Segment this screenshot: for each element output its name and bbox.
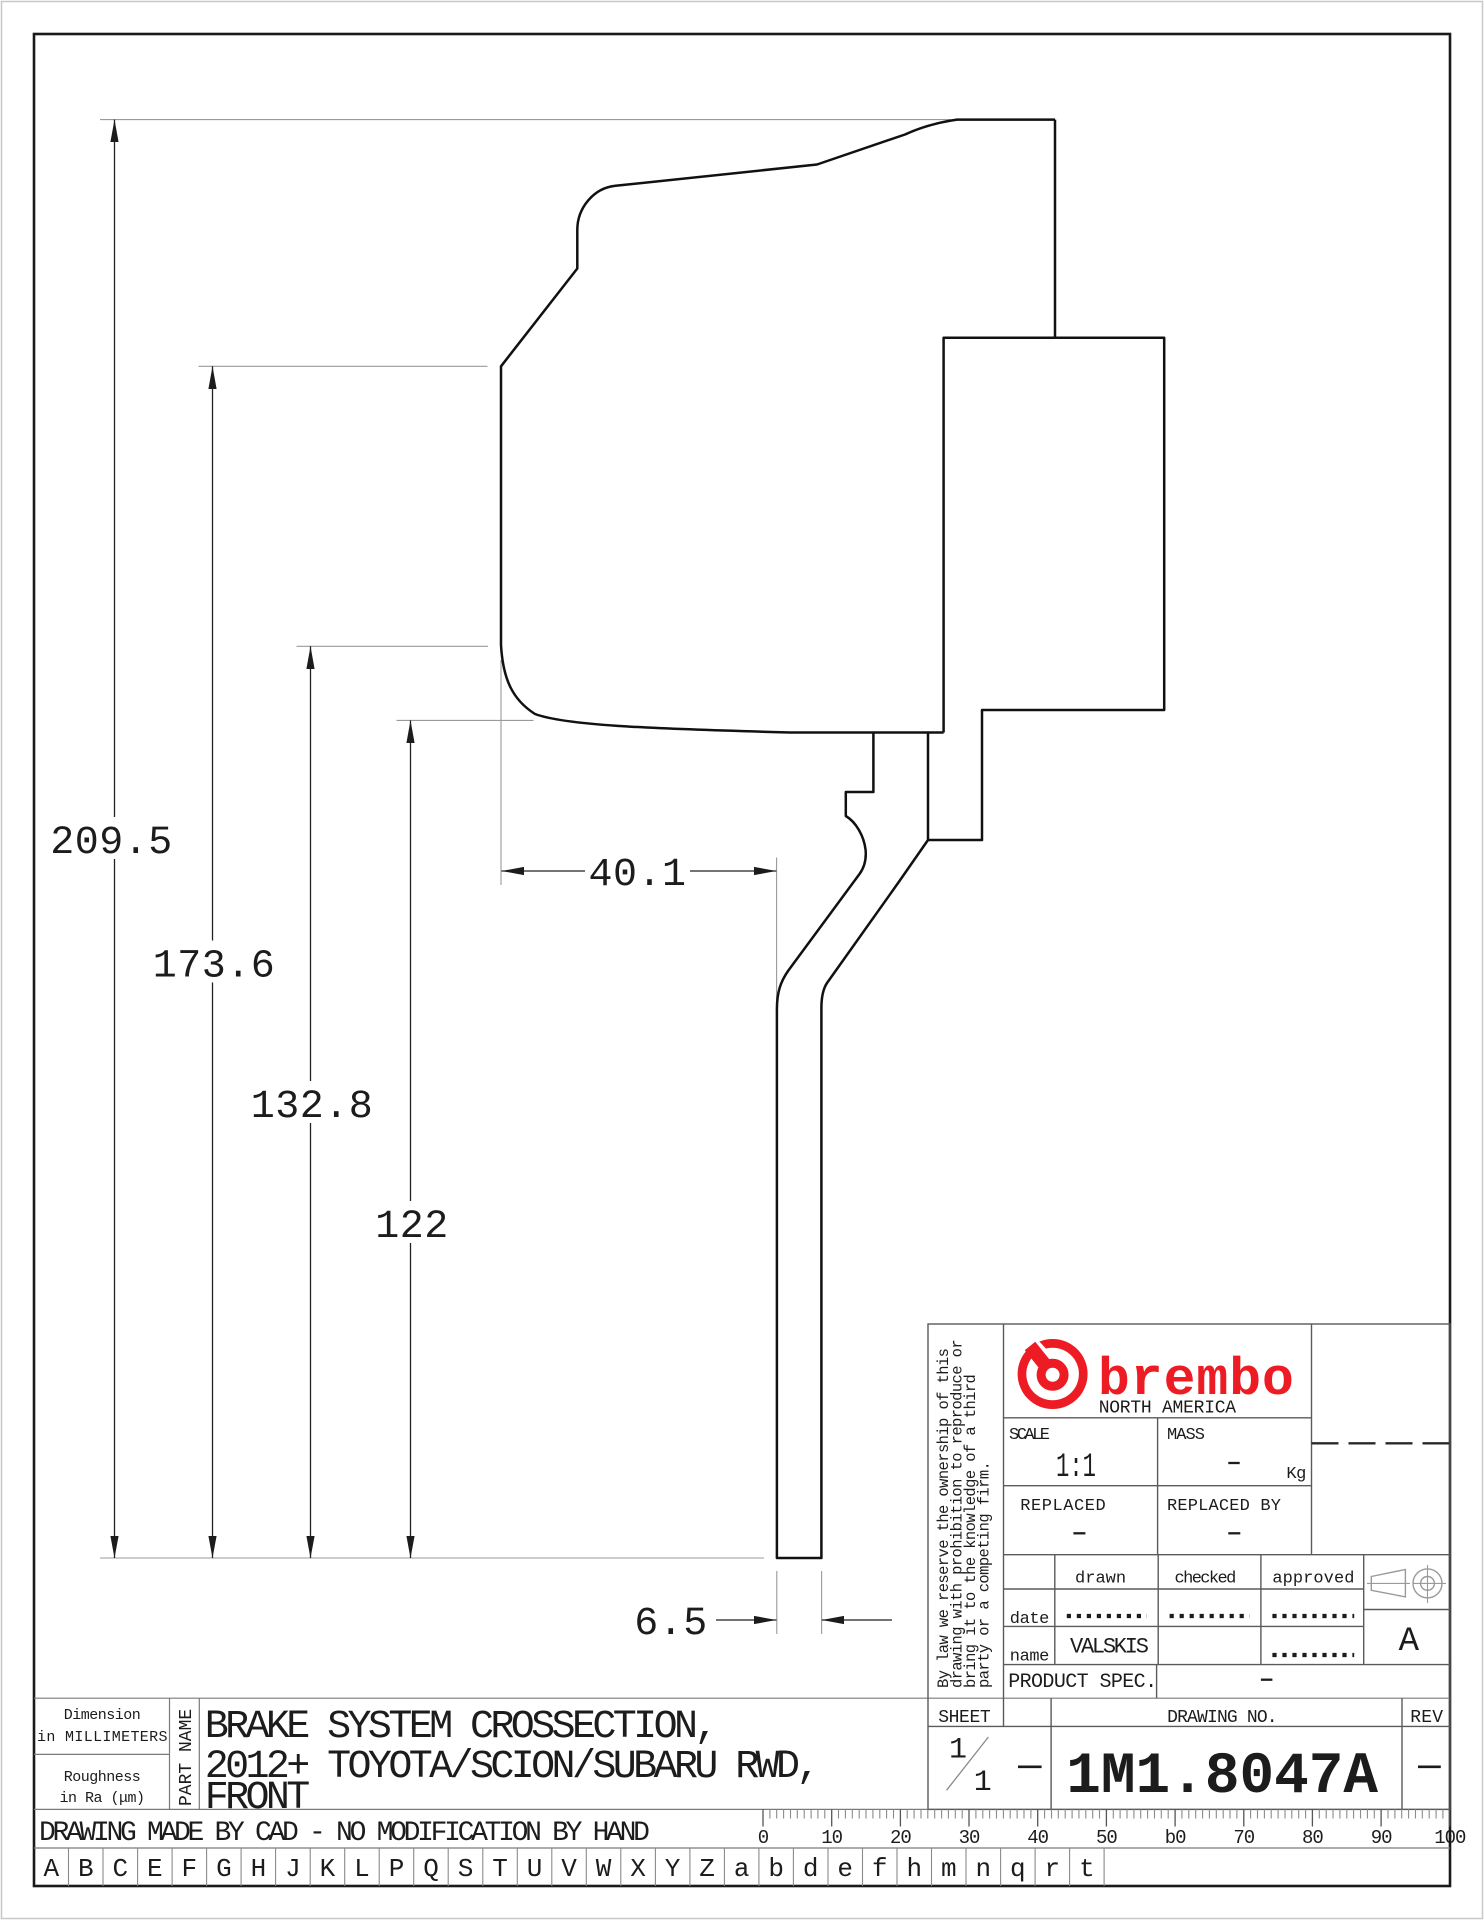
svg-text:b: b xyxy=(768,1854,784,1884)
svg-text:K: K xyxy=(320,1854,336,1884)
svg-text:P: P xyxy=(389,1854,405,1884)
svg-text:0: 0 xyxy=(758,1827,769,1849)
svg-text:Y: Y xyxy=(665,1854,681,1884)
svg-text:X: X xyxy=(630,1854,646,1884)
svg-text:70: 70 xyxy=(1233,1827,1254,1849)
svg-text:a: a xyxy=(734,1854,750,1884)
svg-text:Kg: Kg xyxy=(1286,1465,1305,1484)
svg-text:H: H xyxy=(251,1854,267,1884)
svg-text:r: r xyxy=(1044,1854,1060,1884)
svg-text:party or a competing firm.: party or a competing firm. xyxy=(976,1462,994,1688)
svg-text:100: 100 xyxy=(1434,1827,1466,1849)
svg-text:W: W xyxy=(596,1854,612,1884)
svg-text:SCALE: SCALE xyxy=(1009,1426,1050,1445)
svg-text:U: U xyxy=(527,1854,543,1884)
svg-text:drawn: drawn xyxy=(1075,1569,1126,1588)
svg-text:PART NAME: PART NAME xyxy=(177,1709,197,1806)
svg-text:122: 122 xyxy=(375,1205,449,1250)
svg-text:1M1.8047A: 1M1.8047A xyxy=(1066,1745,1378,1810)
svg-text:PRODUCT SPEC.: PRODUCT SPEC. xyxy=(1008,1671,1156,1694)
svg-text:DRAWING MADE BY CAD - NO MODIF: DRAWING MADE BY CAD - NO MODIFICATION BY… xyxy=(39,1818,649,1849)
svg-text:132.8: 132.8 xyxy=(251,1085,374,1130)
svg-text:FRONT: FRONT xyxy=(205,1776,310,1821)
svg-text:40: 40 xyxy=(1027,1827,1048,1849)
svg-text:F: F xyxy=(181,1854,197,1884)
svg-text:checked: checked xyxy=(1175,1569,1236,1588)
svg-text:REV: REV xyxy=(1410,1708,1443,1728)
svg-text:V: V xyxy=(561,1854,577,1884)
svg-text:SHEET: SHEET xyxy=(938,1708,991,1728)
svg-text:d: d xyxy=(803,1854,819,1884)
svg-text:Z: Z xyxy=(699,1854,715,1884)
svg-text:t: t xyxy=(1079,1854,1095,1884)
svg-text:L: L xyxy=(354,1854,370,1884)
svg-text:in MILLIMETERS: in MILLIMETERS xyxy=(37,1729,167,1746)
svg-text:REPLACED: REPLACED xyxy=(1020,1497,1105,1516)
svg-text:B: B xyxy=(78,1854,94,1884)
svg-text:30: 30 xyxy=(959,1827,980,1849)
svg-text:10: 10 xyxy=(821,1827,842,1849)
svg-text:A: A xyxy=(43,1854,59,1884)
svg-text:C: C xyxy=(112,1854,128,1884)
svg-text:f: f xyxy=(872,1854,888,1884)
svg-text:m: m xyxy=(941,1854,957,1884)
svg-text:A: A xyxy=(1399,1623,1420,1661)
svg-text:NORTH AMERICA: NORTH AMERICA xyxy=(1099,1399,1237,1419)
svg-text:Roughness: Roughness xyxy=(64,1769,141,1786)
svg-text:50: 50 xyxy=(1096,1827,1117,1849)
svg-text:h: h xyxy=(906,1854,922,1884)
svg-text:1: 1 xyxy=(949,1734,967,1768)
svg-text:173.6: 173.6 xyxy=(153,945,276,990)
svg-text:1:1: 1:1 xyxy=(1056,1449,1096,1487)
svg-text:40.1: 40.1 xyxy=(588,853,686,898)
svg-text:T: T xyxy=(492,1854,508,1884)
svg-text:name: name xyxy=(1010,1648,1049,1667)
svg-text:date: date xyxy=(1010,1610,1049,1629)
svg-text:MASS: MASS xyxy=(1167,1426,1205,1445)
svg-text:approved: approved xyxy=(1272,1569,1354,1588)
svg-text:80: 80 xyxy=(1302,1827,1323,1849)
svg-text:REPLACED BY: REPLACED BY xyxy=(1167,1497,1281,1516)
svg-text:Dimension: Dimension xyxy=(64,1707,141,1724)
svg-text:BRAKE SYSTEM CROSSECTION,: BRAKE SYSTEM CROSSECTION, xyxy=(205,1705,715,1750)
svg-text:E: E xyxy=(147,1854,163,1884)
svg-text:20: 20 xyxy=(890,1827,911,1849)
svg-text:in Ra (μm): in Ra (μm) xyxy=(59,1790,144,1807)
svg-text:n: n xyxy=(975,1854,991,1884)
svg-text:b0: b0 xyxy=(1165,1827,1186,1849)
svg-text:q: q xyxy=(1010,1854,1026,1884)
svg-text:90: 90 xyxy=(1371,1827,1392,1849)
svg-text:G: G xyxy=(216,1854,232,1884)
svg-text:J: J xyxy=(285,1854,301,1884)
svg-text:209.5: 209.5 xyxy=(50,821,173,866)
svg-text:VALSKIS: VALSKIS xyxy=(1070,1635,1149,1660)
svg-text:Q: Q xyxy=(423,1854,439,1884)
svg-text:DRAWING NO.: DRAWING NO. xyxy=(1167,1708,1277,1728)
svg-text:6.5: 6.5 xyxy=(634,1602,708,1647)
svg-text:S: S xyxy=(458,1854,474,1884)
svg-text:e: e xyxy=(837,1854,853,1884)
svg-text:1: 1 xyxy=(974,1766,992,1800)
